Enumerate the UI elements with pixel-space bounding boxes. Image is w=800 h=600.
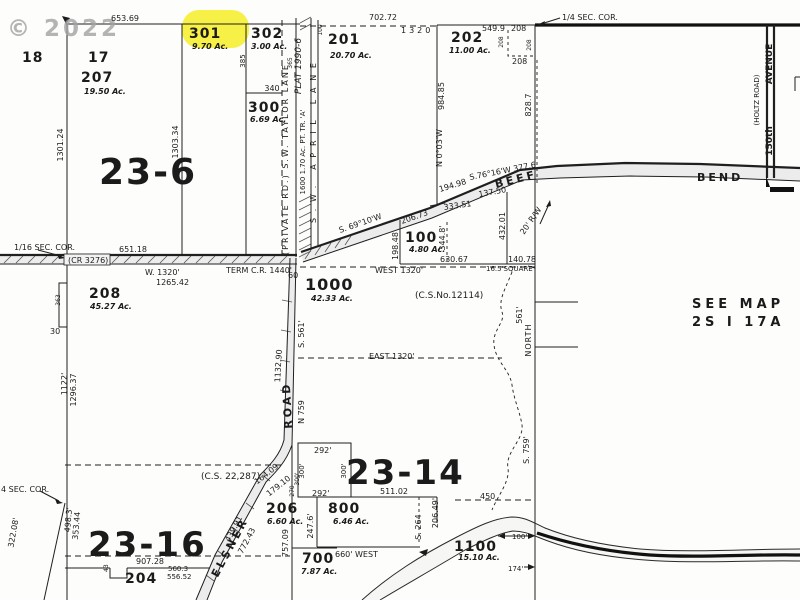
road-label-avenue: AVENUE <box>765 44 775 84</box>
parcel-800: 800 <box>328 501 360 517</box>
parcel-201-acreage: 20.70 Ac. <box>330 51 372 60</box>
parcel-208: 208 <box>89 286 121 302</box>
parcel-207: 207 <box>81 70 113 86</box>
see-map-line1: SEE MAP <box>692 297 784 312</box>
parcel-1000: 1000 <box>305 275 354 294</box>
dim-100ft: 100' <box>512 533 527 541</box>
parcel-700-acreage: 7.87 Ac. <box>301 567 337 576</box>
dim-208-a: 208 <box>511 24 526 33</box>
road-label-150th: 150th <box>765 126 775 156</box>
label-20ft-rw: 20' R/W <box>518 205 543 236</box>
dim-208-d: 208 <box>526 39 533 51</box>
parcel-1000-acreage: 42.33 Ac. <box>310 294 353 303</box>
stream-band <box>362 517 800 600</box>
dim-100-lane: 100 <box>317 24 324 36</box>
dim-140-78: 140.78 <box>508 255 536 264</box>
line-201-202 <box>430 25 445 206</box>
parcel-202: 202 <box>451 30 483 46</box>
dim-1265-42: 1265.42 <box>156 278 189 287</box>
dim-16-5-square: 16.5'SQUARE <box>486 265 533 273</box>
plat-1990-6-label: PLAT 1990-6 <box>294 38 304 94</box>
dim-984-85: 984.85 <box>437 82 446 110</box>
line-east-spurs <box>535 302 578 347</box>
line-sw-diagonal <box>44 503 65 600</box>
dim-300-b: 300' <box>298 463 306 478</box>
dim-651-18: 651.18 <box>119 245 147 254</box>
corner-quarter-sw: 4 SEC. COR. <box>1 485 49 494</box>
parcel-100: 100 <box>405 230 437 246</box>
dim-30: 30 <box>50 327 60 336</box>
dim-n-759: N 759 <box>297 400 306 424</box>
copyright-watermark: © 2022 <box>7 16 120 42</box>
dim-322-08: 322.08' <box>6 517 20 548</box>
parcel-207-acreage: 19.50 Ac. <box>84 87 126 96</box>
dim-340: 340 <box>264 84 279 93</box>
dim-1132-90: 1132.90 <box>273 349 284 383</box>
parcel-700: 700 <box>302 551 334 567</box>
parcel-208-acreage: 45.27 Ac. <box>89 302 132 311</box>
dim-560-3: 560.3 <box>168 565 188 573</box>
road-label-holtz: (HOLTZ ROAD) <box>753 74 761 125</box>
dim-w-1320: W. 1320' <box>145 268 180 277</box>
dim-s-264: S. 264 <box>414 514 423 539</box>
dim-1122: 1122' <box>60 373 69 396</box>
dim-292-a: 292' <box>314 446 331 455</box>
road-label-term-cr1440: TERM C.R. 1440' <box>225 266 292 275</box>
dim-198-48: 198.48 <box>391 232 400 260</box>
dim-450: 450 <box>480 492 495 501</box>
section-23-6: 23-6 <box>99 152 197 193</box>
plat-map-canvas: © 2022 23-6 23-14 23-16 1/4 SEC. COR. 1/… <box>0 0 800 600</box>
dim-208-b: 208 <box>512 57 527 66</box>
dim-653-69: 653.69 <box>111 14 139 23</box>
parcel-17: 17 <box>88 50 109 66</box>
dim-561: 561' <box>515 306 524 323</box>
parcel-302-acreage: 3.00 Ac. <box>251 42 287 51</box>
dim-432-01: 432.01 <box>498 212 507 240</box>
parcel-202-acreage: 11.00 Ac. <box>449 46 491 55</box>
road-label-cr3276: (CR 3276) <box>68 256 108 265</box>
dim-511-02: 511.02 <box>380 487 408 496</box>
dim-1303-34: 1303.34 <box>171 125 180 158</box>
parcel-204: 204 <box>125 571 157 587</box>
dim-363: 363 <box>55 294 62 306</box>
dim-60: 60 <box>288 271 298 280</box>
dim-east-1320: EAST 1320' <box>369 352 415 361</box>
dim-344-8: 344.8' <box>438 225 447 250</box>
parcel-201: 201 <box>328 32 360 48</box>
dim-385: 385 <box>239 54 247 67</box>
line-edge-bracket <box>795 77 800 91</box>
parcel-302: 302 <box>251 26 283 42</box>
label-north: NORTH <box>524 323 533 356</box>
dim-43: 43 <box>103 564 110 572</box>
parcel-301: 301 <box>189 26 221 42</box>
dim-828-7: 828.7 <box>524 94 533 117</box>
see-map-line2: 2S I 17A <box>692 315 784 330</box>
road-label-road: ROAD <box>280 381 295 429</box>
dim-s-759: S. 759' <box>522 436 531 464</box>
dim-206-49: 206.49' <box>431 498 440 528</box>
dim-630-67: 630.67 <box>440 255 468 264</box>
dim-907-28: 907.28 <box>136 557 164 566</box>
corner-sixteenth-w: 1/16 SEC. COR. <box>14 243 75 252</box>
plat-map: © 2022 23-6 23-14 23-16 1/4 SEC. COR. 1/… <box>0 0 800 600</box>
dim-556-52: 556.52 <box>167 573 192 581</box>
road-label-bend: BEND <box>697 171 743 184</box>
dim-549-9: 549.9 <box>482 24 505 33</box>
dim-365: 365 <box>287 57 294 69</box>
corner-quarter-ne: 1/4 SEC. COR. <box>562 13 618 22</box>
leader-rw <box>540 204 549 224</box>
parcel-18: 18 <box>22 50 43 66</box>
dim-270: 270 <box>289 485 296 497</box>
dim-208-c: 208 <box>498 36 505 48</box>
survey-cs22287: (C.S. 22,287) <box>201 472 260 482</box>
parcel-800-acreage: 6.46 Ac. <box>333 517 369 526</box>
road-label-april-lane: S.W. APRIL LANE <box>309 63 318 223</box>
dim-west-1320: WEST 1320' <box>375 266 423 275</box>
parcel-206: 206 <box>266 501 298 517</box>
parcel-301-acreage: 9.70 Ac. <box>192 42 228 51</box>
parcel-1100-acreage: 15.10 Ac. <box>458 553 500 562</box>
parcel-1600: 1600 1.70 Ac. PT. TR. 'A' <box>299 109 307 194</box>
dim-292-b: 292' <box>312 489 329 498</box>
dim-1320: 1320 <box>401 26 433 35</box>
parcel-206-acreage: 6.60 Ac. <box>267 517 303 526</box>
dim-702-72: 702.72 <box>369 13 397 22</box>
dim-1301-24: 1301.24 <box>56 128 65 161</box>
dim-353-44: 353.44 <box>71 511 82 540</box>
bearing-n0-03w: N 0°03'W <box>435 129 444 167</box>
dim-757-09: 757.09 <box>281 529 290 557</box>
dim-s-561: S. 561' <box>297 320 306 348</box>
survey-cs12114: (C.S.No.12114) <box>415 291 483 301</box>
dim-660-west: 660' WEST <box>335 550 378 559</box>
dim-1296-37: 1296.37 <box>69 373 78 406</box>
dim-194-98: 194.98 <box>438 177 467 194</box>
dim-300-c: 300' <box>340 463 348 478</box>
dim-247-6: 247.6' <box>306 513 315 538</box>
parcel-300: 300 <box>248 100 280 116</box>
dim-174ft: 174' <box>508 565 523 573</box>
